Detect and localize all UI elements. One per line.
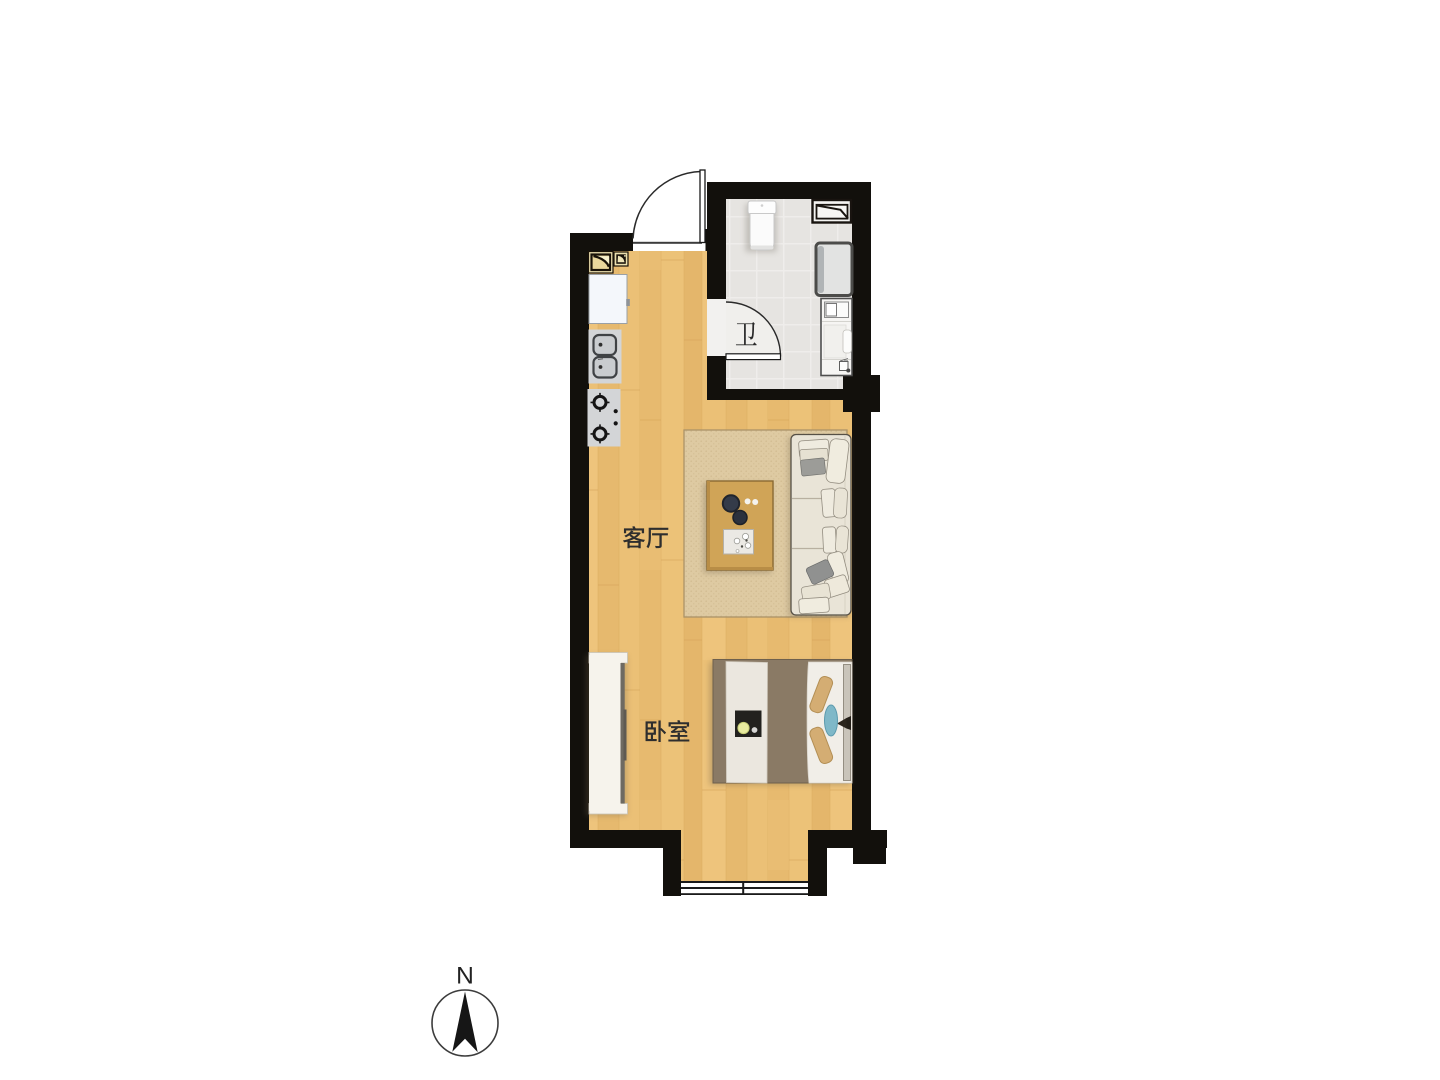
svg-text:N: N xyxy=(456,963,474,990)
